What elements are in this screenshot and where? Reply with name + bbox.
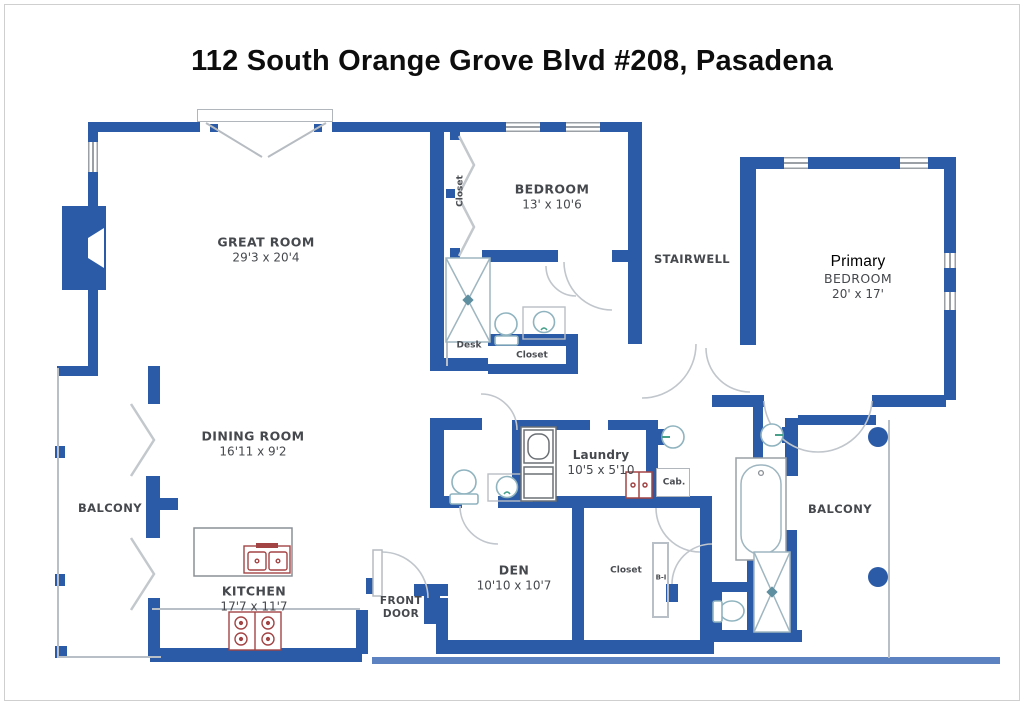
wall-segment — [712, 582, 750, 592]
french-door-panel — [197, 109, 333, 122]
washer-dryer-icon — [521, 427, 556, 501]
wall-segment — [430, 496, 462, 508]
label-bedroom-closet: Closet — [455, 175, 466, 207]
wall-segment — [740, 157, 756, 345]
partition-line — [652, 542, 654, 618]
kitchen-island — [194, 528, 292, 576]
partition-line — [446, 322, 448, 366]
wall-segment — [210, 124, 218, 132]
wall-segment — [436, 598, 448, 644]
wall-segment — [700, 508, 712, 642]
room-label-balcony-left: BALCONY — [78, 501, 142, 515]
wall-segment — [57, 366, 98, 376]
wall-segment — [430, 418, 444, 506]
wall-segment — [450, 132, 460, 140]
wall-segment — [430, 358, 488, 371]
wall-segment — [608, 420, 648, 430]
wall-segment — [712, 592, 722, 640]
label-built-in: B-I — [656, 574, 667, 583]
wall-segment — [146, 476, 160, 538]
front-door-leaf — [373, 550, 382, 596]
room-label-den: DEN 10'10 x 10'7 — [477, 563, 552, 594]
label-cabinet: Cab. — [663, 477, 686, 488]
partition-line — [57, 368, 59, 658]
wall-segment — [436, 640, 714, 654]
sink-fixture — [662, 426, 684, 448]
wall-segment — [566, 334, 578, 374]
wall-segment — [160, 498, 178, 510]
wall-segment — [150, 648, 362, 662]
wall-segment — [648, 496, 712, 508]
room-label-balcony-right: BALCONY — [808, 502, 872, 516]
partition-line — [57, 656, 161, 658]
wall-segment — [488, 334, 576, 346]
room-label-stairwell: STAIRWELL — [654, 252, 730, 266]
wall-segment — [444, 122, 506, 132]
label-den-closet: Closet — [610, 565, 642, 576]
wall-segment — [366, 578, 374, 594]
wall-segment — [753, 398, 763, 460]
shower-fixture — [446, 258, 490, 342]
wall-segment — [62, 206, 106, 290]
partition-line — [667, 542, 669, 618]
wall-segment — [742, 157, 784, 169]
wall-segment — [314, 124, 322, 132]
room-label-kitchen: KITCHEN 17'7 x 11'7 — [220, 584, 287, 615]
wall-segment — [785, 418, 798, 476]
label-desk: Desk — [457, 340, 482, 351]
window — [784, 157, 808, 169]
wall-segment — [572, 508, 584, 642]
stove-icon — [229, 612, 281, 650]
wall-segment — [872, 395, 946, 407]
window — [506, 122, 540, 132]
room-label-dining-room: DINING ROOM 16'11 x 9'2 — [202, 429, 305, 460]
window — [88, 142, 98, 172]
wall-segment — [482, 250, 558, 262]
french-doors-icon — [206, 123, 326, 157]
room-label-bedroom: BEDROOM 13' x 10'6 — [515, 182, 590, 213]
room-label-great-room: GREAT ROOM 29'3 x 20'4 — [217, 235, 314, 266]
wall-segment — [712, 395, 758, 407]
wall-segment — [944, 268, 956, 292]
bathtub-icon — [736, 458, 786, 560]
partition-line — [446, 322, 468, 324]
wall-segment — [785, 530, 797, 640]
partition-line — [888, 420, 890, 658]
wall-segment — [332, 122, 444, 132]
label-hall-closet: Closet — [516, 350, 548, 361]
room-label-laundry: Laundry 10'5 x 5'10 — [567, 448, 634, 478]
wall-segment — [430, 122, 444, 358]
wall-segment — [944, 157, 956, 253]
wall-segment — [488, 364, 576, 374]
wall-segment — [944, 310, 956, 400]
wall-segment — [148, 366, 160, 404]
balcony-column — [868, 427, 888, 447]
window — [900, 157, 928, 169]
wall-segment — [656, 429, 665, 445]
wall-segment — [540, 122, 566, 132]
wall-segment — [446, 189, 455, 198]
wall-segment — [808, 157, 900, 169]
wall-segment — [512, 420, 524, 506]
wall-segment — [798, 415, 876, 425]
balcony-column — [868, 567, 888, 587]
wall-segment — [444, 418, 482, 430]
wall-segment — [450, 248, 460, 258]
window — [944, 292, 956, 310]
wall-segment — [628, 122, 642, 344]
wall-segment — [88, 122, 200, 132]
kitchen-sink-icon — [244, 543, 290, 573]
room-label-primary-bedroom: Primary BEDROOM 20' x 17' — [824, 252, 892, 302]
door-arcs — [382, 262, 872, 598]
wall-segment — [88, 288, 98, 368]
window — [566, 122, 600, 132]
label-front-door: FRONT DOOR — [377, 595, 425, 621]
window — [944, 253, 956, 268]
wall-segment — [498, 496, 648, 508]
wall-segment — [524, 420, 590, 430]
floor-plan: GREAT ROOM 29'3 x 20'4 BEDROOM 13' x 10'… — [0, 0, 1024, 705]
sink-fixture — [761, 424, 783, 446]
wall-segment — [88, 172, 98, 208]
terrace-edge — [372, 657, 1000, 664]
wall-segment — [356, 610, 368, 654]
